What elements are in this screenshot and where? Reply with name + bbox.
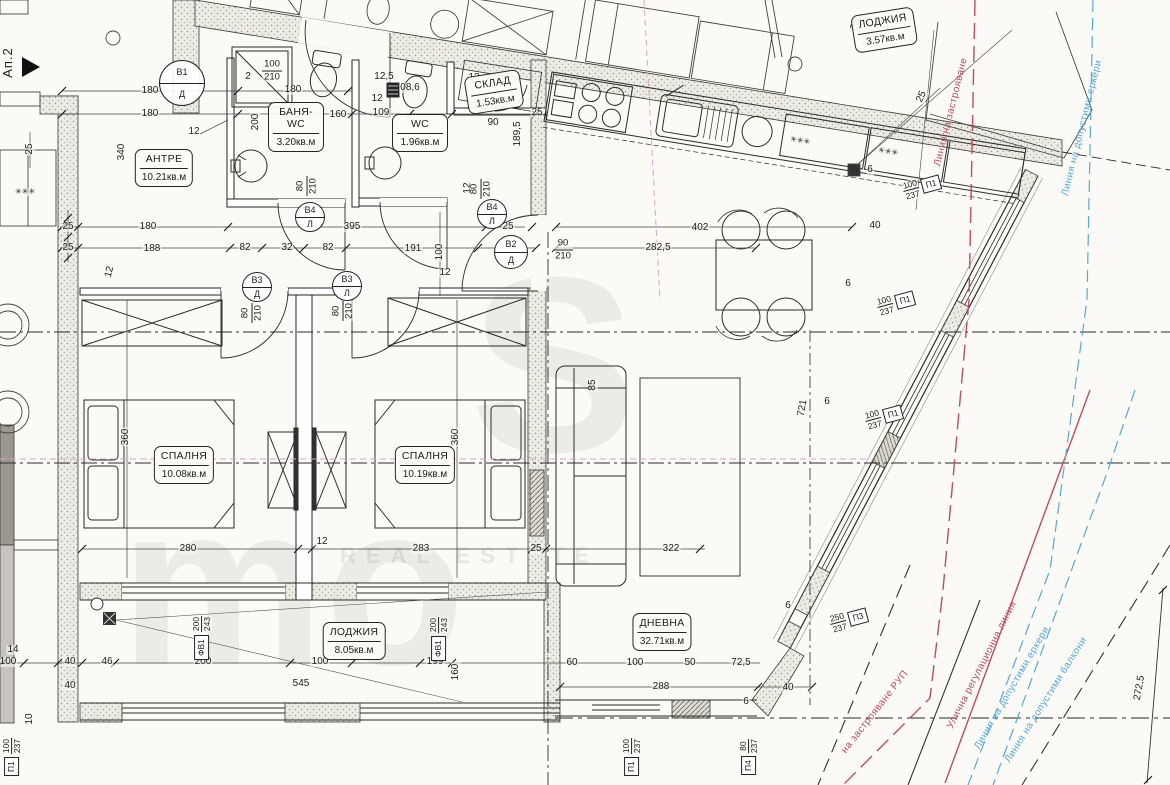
window-width: 200 bbox=[429, 617, 438, 633]
dimension-ticks bbox=[0, 87, 1167, 784]
door-width: 90 bbox=[553, 239, 573, 250]
dimension-label: 340 bbox=[117, 143, 127, 162]
room-name: АНТРЕ bbox=[140, 151, 188, 168]
floor-plan: S mo REAL ESTATE bbox=[0, 0, 1170, 785]
door-marker-code: В4 bbox=[296, 203, 324, 218]
dimension-label: 322 bbox=[662, 544, 681, 554]
room-area: 10.08кв.м bbox=[159, 465, 209, 482]
dimension-label: 360 bbox=[451, 428, 461, 447]
dimension-label: 6 bbox=[823, 397, 831, 407]
dimension-label: 12 bbox=[438, 268, 451, 278]
door-height: 210 bbox=[553, 250, 573, 262]
floor-plan-drawing bbox=[0, 0, 1170, 785]
loggia-windows bbox=[80, 583, 757, 720]
window-width: 100 bbox=[622, 738, 631, 754]
dimension-label: 6 bbox=[742, 697, 750, 707]
dimension-label: 545 bbox=[292, 679, 311, 689]
dimension-label: 12 bbox=[187, 127, 200, 137]
window-tag: П1 bbox=[5, 757, 20, 776]
window-marker: 100 237 П1 bbox=[622, 738, 642, 776]
window-size: 200 243 bbox=[429, 617, 449, 633]
dimension-label: 100 bbox=[626, 658, 645, 668]
dimension-label: 160 bbox=[329, 110, 348, 120]
door-height: 210 bbox=[343, 301, 355, 321]
dimension-label: 25 bbox=[25, 142, 35, 155]
door-height: 210 bbox=[252, 303, 264, 323]
window-tag: ФВ1 bbox=[432, 636, 447, 661]
dimension-label: 191 bbox=[404, 244, 423, 254]
window-size: 200 243 bbox=[192, 616, 212, 632]
room-label: WC 1.96кв.м bbox=[392, 114, 448, 152]
window-marker: 200 243 ФВ1 bbox=[192, 616, 212, 660]
dimension-label: 283 bbox=[412, 544, 431, 554]
door-marker-code: В3 bbox=[243, 273, 271, 288]
dimension-label: 6 bbox=[784, 601, 792, 611]
dimension-label: 40 bbox=[63, 657, 76, 667]
dimension-label: 180 bbox=[284, 85, 303, 95]
window-width: 80 bbox=[739, 739, 748, 753]
door-marker-side: Л bbox=[333, 287, 361, 301]
window-size: 100 237 bbox=[622, 738, 642, 754]
dimension-label: 180 bbox=[141, 109, 160, 119]
dimension-label: 360 bbox=[121, 428, 131, 447]
living-furniture bbox=[556, 208, 812, 586]
room-name: БАНЯ-WC bbox=[273, 104, 319, 133]
dimension-label: 280 bbox=[179, 544, 198, 554]
window-tag: П1 bbox=[882, 405, 904, 424]
dimension-label: 25 bbox=[61, 222, 74, 232]
room-area: 10.21кв.м bbox=[140, 168, 188, 185]
dimension-label: 32 bbox=[280, 243, 293, 253]
window-height: 237 bbox=[11, 738, 22, 754]
window-tag: П3 bbox=[847, 608, 869, 627]
dimension-label: 402 bbox=[691, 223, 710, 233]
room-label: СПАЛНЯ 10.19кв.м bbox=[395, 446, 455, 484]
dimension-label: 10 bbox=[25, 712, 35, 725]
dimension-label: 40 bbox=[63, 681, 76, 691]
window-size: 100 237 bbox=[2, 738, 22, 754]
room-label: АНТРЕ 10.21кв.м bbox=[135, 149, 193, 187]
dimension-label: 60 bbox=[565, 658, 578, 668]
window-tag: ФВ1 bbox=[195, 635, 210, 660]
door-marker: В3 Д bbox=[242, 272, 272, 302]
room-name: ДНЕВНА bbox=[637, 615, 686, 632]
door-height: 210 bbox=[481, 179, 493, 199]
door-marker: В1 Д bbox=[159, 60, 205, 106]
dimension-label: 90 bbox=[486, 118, 499, 128]
window-tag: П4 bbox=[742, 756, 757, 775]
door-size-fraction: 80 210 bbox=[241, 303, 264, 323]
entrance-arrow bbox=[22, 57, 40, 77]
dimension-label: 40 bbox=[781, 683, 794, 693]
dimension-label: 6 bbox=[866, 165, 874, 175]
apartment-label: Ап.2 bbox=[0, 47, 15, 78]
door-marker-code: В2 bbox=[495, 236, 527, 253]
dimension-label: 200 bbox=[251, 113, 261, 132]
dimension-label: 12 bbox=[315, 537, 328, 547]
axis-lines bbox=[0, 0, 1170, 785]
door-marker-side: Л bbox=[478, 215, 506, 229]
door-size-fraction: 80 210 bbox=[332, 301, 355, 321]
door-width: 80 bbox=[332, 301, 343, 321]
dimension-label: 72,5 bbox=[730, 658, 751, 668]
door-width: 100 bbox=[262, 60, 282, 71]
window-tag: П1 bbox=[625, 757, 640, 776]
dimension-label: 25 bbox=[529, 544, 542, 554]
door-height: 210 bbox=[262, 71, 282, 83]
room-area: 32.71кв.м bbox=[637, 632, 686, 649]
dimension-label: ✳✳✳ bbox=[14, 188, 36, 196]
door-marker-code: В1 bbox=[160, 61, 204, 84]
dimension-label: 189,5 bbox=[513, 120, 523, 147]
door-size-fraction: 80 210 bbox=[470, 179, 493, 199]
dimension-label: 2 bbox=[244, 72, 252, 82]
dimension-label: 82 bbox=[321, 243, 334, 253]
room-area: 8.05кв.м bbox=[328, 641, 381, 658]
door-marker-side: Д bbox=[160, 84, 204, 106]
door-width: 80 bbox=[241, 303, 252, 323]
dimension-label: 25 bbox=[530, 108, 543, 118]
dimension-label: 160 bbox=[451, 663, 461, 682]
window-marker: 80 237 П4 bbox=[739, 739, 759, 775]
dimension-label: 85 bbox=[588, 378, 598, 391]
window-wall bbox=[773, 167, 1042, 650]
dimension-label: 25 bbox=[61, 243, 74, 253]
dimension-label: 100 bbox=[435, 243, 445, 262]
door-marker: В4 Л bbox=[295, 202, 325, 232]
dimension-label: 82 bbox=[238, 243, 251, 253]
door-marker: В4 Л bbox=[477, 199, 507, 229]
room-name: ЛОДЖИЯ bbox=[328, 624, 381, 641]
room-area: 10.19кв.м bbox=[400, 465, 450, 482]
door-size-fraction: 100 210 bbox=[262, 60, 282, 83]
door-marker: В2 Д bbox=[494, 235, 528, 269]
room-name: СПАЛНЯ bbox=[400, 448, 450, 465]
room-name: СПАЛНЯ bbox=[159, 448, 209, 465]
room-label: ДНЕВНА 32.71кв.м bbox=[632, 613, 691, 651]
dimension-label: 180 bbox=[141, 86, 160, 96]
window-height: 243 bbox=[201, 616, 212, 632]
door-marker-code: В3 bbox=[333, 272, 361, 287]
door-width: 80 bbox=[470, 179, 481, 199]
window-width: 100 bbox=[2, 738, 11, 754]
dimension-label: 100 bbox=[0, 657, 17, 667]
window-width: 200 bbox=[192, 616, 201, 632]
door-height: 210 bbox=[307, 176, 319, 196]
door-size-fraction: 80 210 bbox=[296, 176, 319, 196]
dimension-label: 282,5 bbox=[644, 243, 671, 253]
dimension-label: 12,5 bbox=[373, 72, 394, 82]
window-marker: 200 243 ФВ1 bbox=[429, 617, 449, 661]
dimension-label: 288 bbox=[652, 682, 671, 692]
room-area: 1.96кв.м bbox=[397, 133, 443, 150]
window-tag: П1 bbox=[920, 175, 942, 194]
dimension-label: 395 bbox=[343, 222, 362, 232]
dimension-label: 12 bbox=[370, 94, 383, 104]
door-marker-side: Д bbox=[243, 288, 271, 302]
dimension-label: 40 bbox=[868, 221, 881, 231]
door-marker: В3 Л bbox=[332, 271, 362, 301]
window-height: 237 bbox=[631, 738, 642, 754]
door-marker-side: Л bbox=[296, 218, 324, 232]
dimension-label: 46 bbox=[100, 657, 113, 667]
door-marker-code: В4 bbox=[478, 200, 506, 215]
dimension-label: 6 bbox=[844, 279, 852, 289]
room-label: ЛОДЖИЯ 8.05кв.м bbox=[323, 622, 386, 660]
dimension-label: 14 bbox=[6, 645, 19, 655]
dimension-label: 180 bbox=[139, 222, 158, 232]
room-name: WC bbox=[397, 116, 443, 133]
window-height: 243 bbox=[438, 617, 449, 633]
room-label: БАНЯ-WC 3.20кв.м bbox=[268, 102, 324, 152]
dimension-label: 08,6 bbox=[399, 83, 420, 93]
dimension-label: 188 bbox=[143, 244, 162, 254]
dimension-label: 109 bbox=[372, 108, 391, 118]
dimension-label: 50 bbox=[683, 658, 696, 668]
door-width: 80 bbox=[296, 176, 307, 196]
room-label: СПАЛНЯ 10.08кв.м bbox=[154, 446, 214, 484]
door-marker-side: Д bbox=[495, 253, 527, 269]
window-marker: 100 237 П1 bbox=[2, 738, 22, 776]
door-size-fraction: 90 210 bbox=[553, 239, 573, 262]
window-tag: П1 bbox=[894, 291, 916, 310]
window-height: 237 bbox=[748, 739, 759, 753]
window-size: 80 237 bbox=[739, 739, 759, 753]
room-area: 3.20кв.м bbox=[273, 133, 319, 150]
